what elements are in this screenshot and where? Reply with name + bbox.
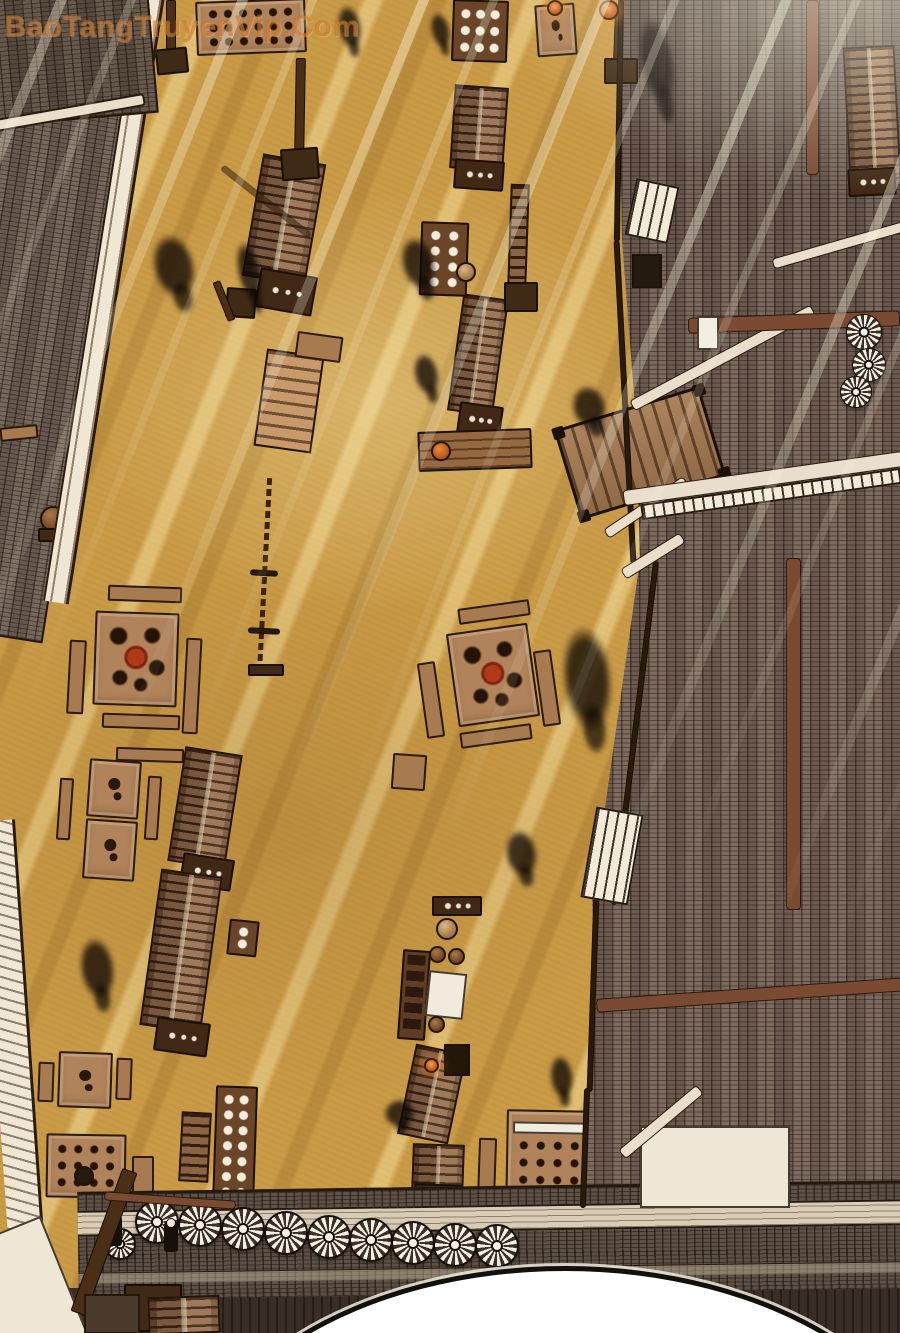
- counter: [153, 1016, 211, 1057]
- counter: [453, 158, 505, 191]
- pot: [429, 946, 446, 963]
- cap: [786, 558, 801, 910]
- base: [155, 46, 190, 75]
- stall: [843, 45, 900, 182]
- pot: [74, 1166, 94, 1186]
- pot: [428, 1016, 445, 1033]
- watermark-text: BaoTangTruyenVip.Com: [4, 10, 360, 44]
- counter: [847, 167, 896, 197]
- pot: [436, 918, 458, 940]
- parasol: [264, 1211, 308, 1255]
- patch: [632, 254, 662, 288]
- parasol: [475, 1224, 519, 1268]
- base: [248, 664, 284, 676]
- table: [57, 1051, 113, 1109]
- comic-panel: BaoTangTruyenVip.Com: [0, 0, 900, 1333]
- ladder: [507, 184, 530, 289]
- base: [504, 282, 538, 312]
- patch: [697, 316, 719, 350]
- table: [92, 611, 179, 708]
- table: [446, 623, 540, 727]
- parasol: [840, 376, 872, 408]
- parasol: [221, 1207, 265, 1251]
- parasol: [846, 314, 882, 350]
- bench: [391, 753, 427, 791]
- table: [86, 758, 142, 819]
- patch: [444, 1044, 470, 1076]
- counter: [226, 919, 260, 958]
- pot: [456, 262, 476, 282]
- stall: [147, 1295, 220, 1333]
- lantern: [599, 0, 619, 20]
- parasol: [433, 1223, 477, 1267]
- lantern: [424, 1058, 439, 1073]
- bench: [102, 713, 180, 731]
- parasol: [178, 1203, 222, 1247]
- bench: [108, 585, 183, 604]
- patch: [84, 1294, 140, 1333]
- lantern: [547, 0, 563, 16]
- patch: [513, 1121, 585, 1134]
- ladder: [178, 1111, 212, 1182]
- cap: [806, 0, 819, 175]
- bench: [115, 1058, 132, 1101]
- parasol: [307, 1215, 351, 1259]
- patch: [425, 970, 468, 1020]
- pot: [448, 948, 465, 965]
- patch: [640, 1126, 790, 1208]
- bench: [37, 1062, 54, 1103]
- counter: [451, 0, 509, 63]
- counter: [417, 428, 532, 472]
- base: [280, 147, 320, 182]
- parasol: [349, 1218, 393, 1262]
- counter: [432, 896, 482, 916]
- parasol: [391, 1221, 435, 1265]
- table: [82, 818, 138, 881]
- pole: [294, 58, 306, 156]
- person: [164, 1222, 178, 1252]
